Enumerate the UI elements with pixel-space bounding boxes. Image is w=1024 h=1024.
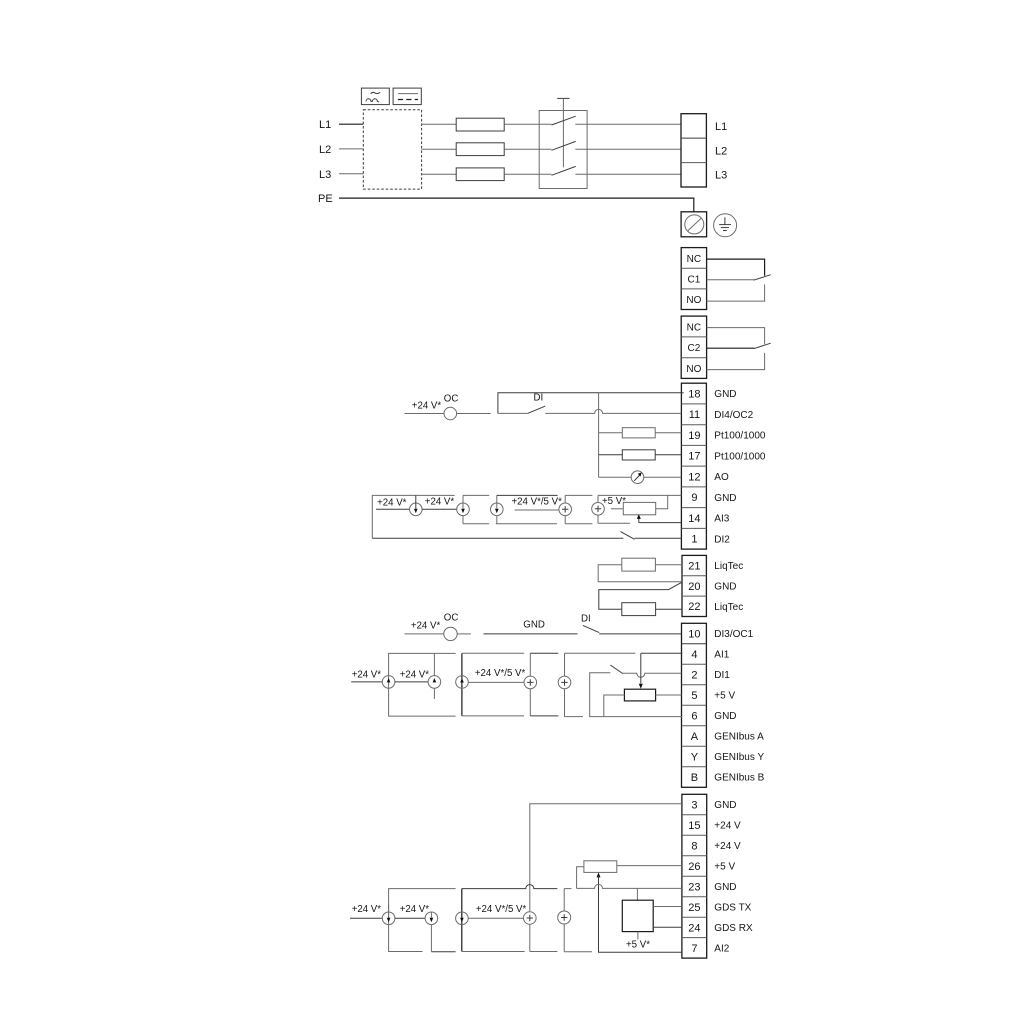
svg-text:17: 17 <box>688 451 700 463</box>
svg-text:GDS RX: GDS RX <box>714 923 753 934</box>
svg-text:25: 25 <box>688 902 700 914</box>
svg-text:9: 9 <box>691 492 697 504</box>
svg-text:GND: GND <box>714 493 736 504</box>
svg-text:2: 2 <box>691 669 697 681</box>
svg-text:GND: GND <box>714 800 736 811</box>
svg-text:+24 V*: +24 V* <box>352 669 382 680</box>
svg-text:C1: C1 <box>688 274 701 285</box>
svg-text:GND: GND <box>714 711 736 722</box>
svg-text:GND: GND <box>714 882 736 893</box>
svg-text:LiqTec: LiqTec <box>714 561 743 572</box>
svg-text:4: 4 <box>691 649 697 661</box>
svg-text:+24 V*: +24 V* <box>377 497 407 508</box>
svg-text:GENIbus Y: GENIbus Y <box>714 752 764 763</box>
svg-text:DI4/OC2: DI4/OC2 <box>714 410 753 421</box>
svg-text:+24 V*: +24 V* <box>400 669 430 680</box>
svg-text:21: 21 <box>688 561 700 573</box>
svg-text:+5 V*: +5 V* <box>626 939 650 950</box>
svg-text:L2: L2 <box>319 144 331 156</box>
svg-text:+24 V*/5 V*: +24 V*/5 V* <box>475 668 526 679</box>
svg-text:19: 19 <box>688 430 700 442</box>
svg-text:DI1: DI1 <box>714 670 730 681</box>
svg-text:L1: L1 <box>319 119 331 131</box>
svg-text:15: 15 <box>688 820 700 832</box>
svg-text:NO: NO <box>686 364 701 375</box>
svg-text:24: 24 <box>688 922 700 934</box>
svg-text:10: 10 <box>688 628 700 640</box>
svg-text:GDS TX: GDS TX <box>714 903 751 914</box>
svg-text:AO: AO <box>714 472 729 483</box>
svg-text:L3: L3 <box>715 170 727 182</box>
svg-text:+24 V: +24 V <box>714 821 741 832</box>
svg-text:DI: DI <box>581 613 591 624</box>
svg-text:A: A <box>691 731 699 743</box>
svg-text:GENIbus A: GENIbus A <box>714 732 764 743</box>
svg-text:+5 V*: +5 V* <box>602 496 626 507</box>
svg-text:L1: L1 <box>715 121 727 133</box>
svg-text:L3: L3 <box>319 169 331 181</box>
svg-text:PE: PE <box>318 193 333 205</box>
svg-text:+5 V: +5 V <box>714 862 735 873</box>
svg-text:22: 22 <box>688 601 700 613</box>
svg-text:23: 23 <box>688 881 700 893</box>
svg-text:AI2: AI2 <box>714 944 729 955</box>
svg-text:12: 12 <box>688 471 700 483</box>
svg-text:Pt100/1000: Pt100/1000 <box>714 451 766 462</box>
svg-text:GND: GND <box>523 619 545 630</box>
svg-text:8: 8 <box>691 840 697 852</box>
svg-text:+24 V*: +24 V* <box>425 496 455 507</box>
svg-text:GND: GND <box>714 582 736 593</box>
svg-text:LiqTec: LiqTec <box>714 602 743 613</box>
svg-text:3: 3 <box>691 800 697 812</box>
svg-text:1: 1 <box>691 534 697 546</box>
svg-text:NC: NC <box>687 322 701 333</box>
svg-text:AI1: AI1 <box>714 650 729 661</box>
svg-text:14: 14 <box>688 513 700 525</box>
svg-text:7: 7 <box>691 943 697 955</box>
svg-text:Pt100/1000: Pt100/1000 <box>714 431 766 442</box>
svg-text:AI3: AI3 <box>714 514 729 525</box>
svg-text:5: 5 <box>691 690 697 702</box>
svg-text:OC: OC <box>444 613 459 624</box>
svg-text:GND: GND <box>714 389 736 400</box>
svg-text:6: 6 <box>691 710 697 722</box>
svg-text:+24 V*: +24 V* <box>411 621 441 632</box>
svg-text:+24 V*/5 V*: +24 V*/5 V* <box>476 904 527 915</box>
svg-text:DI2: DI2 <box>714 534 730 545</box>
svg-text:Y: Y <box>691 751 699 763</box>
svg-text:DI: DI <box>534 393 544 404</box>
svg-text:+5 V: +5 V <box>714 691 735 702</box>
svg-text:B: B <box>691 772 698 784</box>
svg-text:NO: NO <box>686 295 701 306</box>
svg-text:L2: L2 <box>715 145 727 157</box>
svg-text:DI3/OC1: DI3/OC1 <box>714 629 753 640</box>
svg-text:26: 26 <box>688 861 700 873</box>
svg-text:+24 V*: +24 V* <box>400 904 430 915</box>
svg-text:OC: OC <box>444 394 459 405</box>
svg-text:NC: NC <box>687 254 701 265</box>
svg-text:11: 11 <box>689 409 700 421</box>
svg-text:+24 V: +24 V <box>714 841 741 852</box>
svg-text:20: 20 <box>688 581 700 593</box>
svg-text:+24 V*/5 V*: +24 V*/5 V* <box>512 496 563 507</box>
svg-text:C2: C2 <box>688 343 701 354</box>
svg-text:18: 18 <box>688 389 700 401</box>
svg-text:+24 V*: +24 V* <box>412 400 442 411</box>
svg-text:GENIbus B: GENIbus B <box>714 773 764 784</box>
svg-text:+24 V*: +24 V* <box>352 904 382 915</box>
